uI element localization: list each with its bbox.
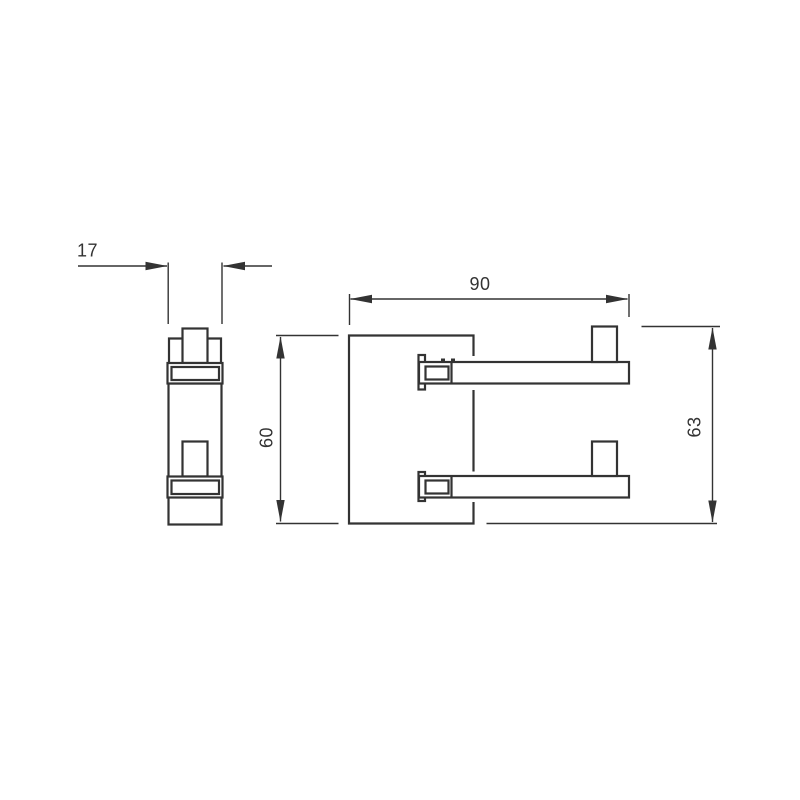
dimension-plate-height-label: 60: [257, 427, 277, 448]
side-view-left-shoulder: [169, 339, 183, 364]
side-view-top-peg: [183, 329, 208, 364]
dimension-plate-height: [276, 336, 339, 524]
dimension-overall-height-label: 63: [685, 416, 705, 437]
side-view-bottom-peg: [183, 442, 208, 477]
dimension-depth-label: 17: [77, 241, 98, 261]
dimension-width: [350, 294, 630, 325]
front-view-top-arm-nub-1: [441, 359, 445, 363]
front-view-top-arm-nub-2: [451, 359, 455, 363]
technical-drawing-page: 17 90 60 63: [0, 0, 800, 800]
technical-drawing-canvas: 17 90 60 63: [0, 0, 800, 800]
side-view-right-shoulder: [208, 339, 222, 364]
dimension-width-label: 90: [469, 274, 490, 294]
side-view: [168, 329, 223, 525]
front-view-top-peg: [592, 327, 617, 363]
dimension-depth: [78, 263, 272, 325]
front-view: [349, 327, 629, 524]
front-view-bottom-peg: [592, 442, 617, 477]
